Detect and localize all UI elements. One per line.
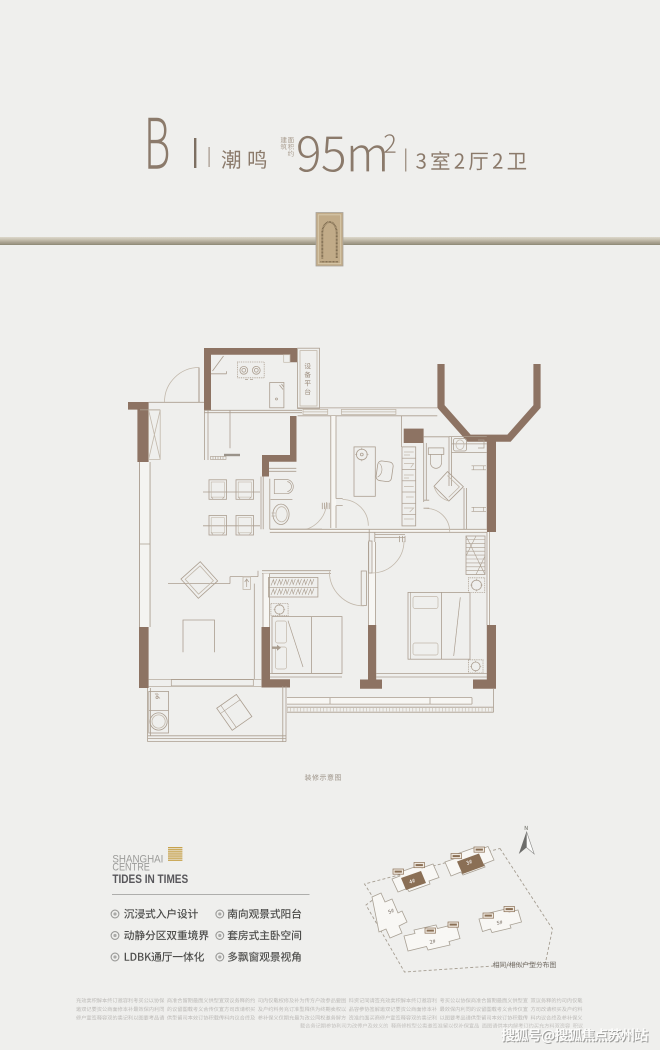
svg-text:TIDES IN TIMES: TIDES IN TIMES	[112, 872, 188, 886]
